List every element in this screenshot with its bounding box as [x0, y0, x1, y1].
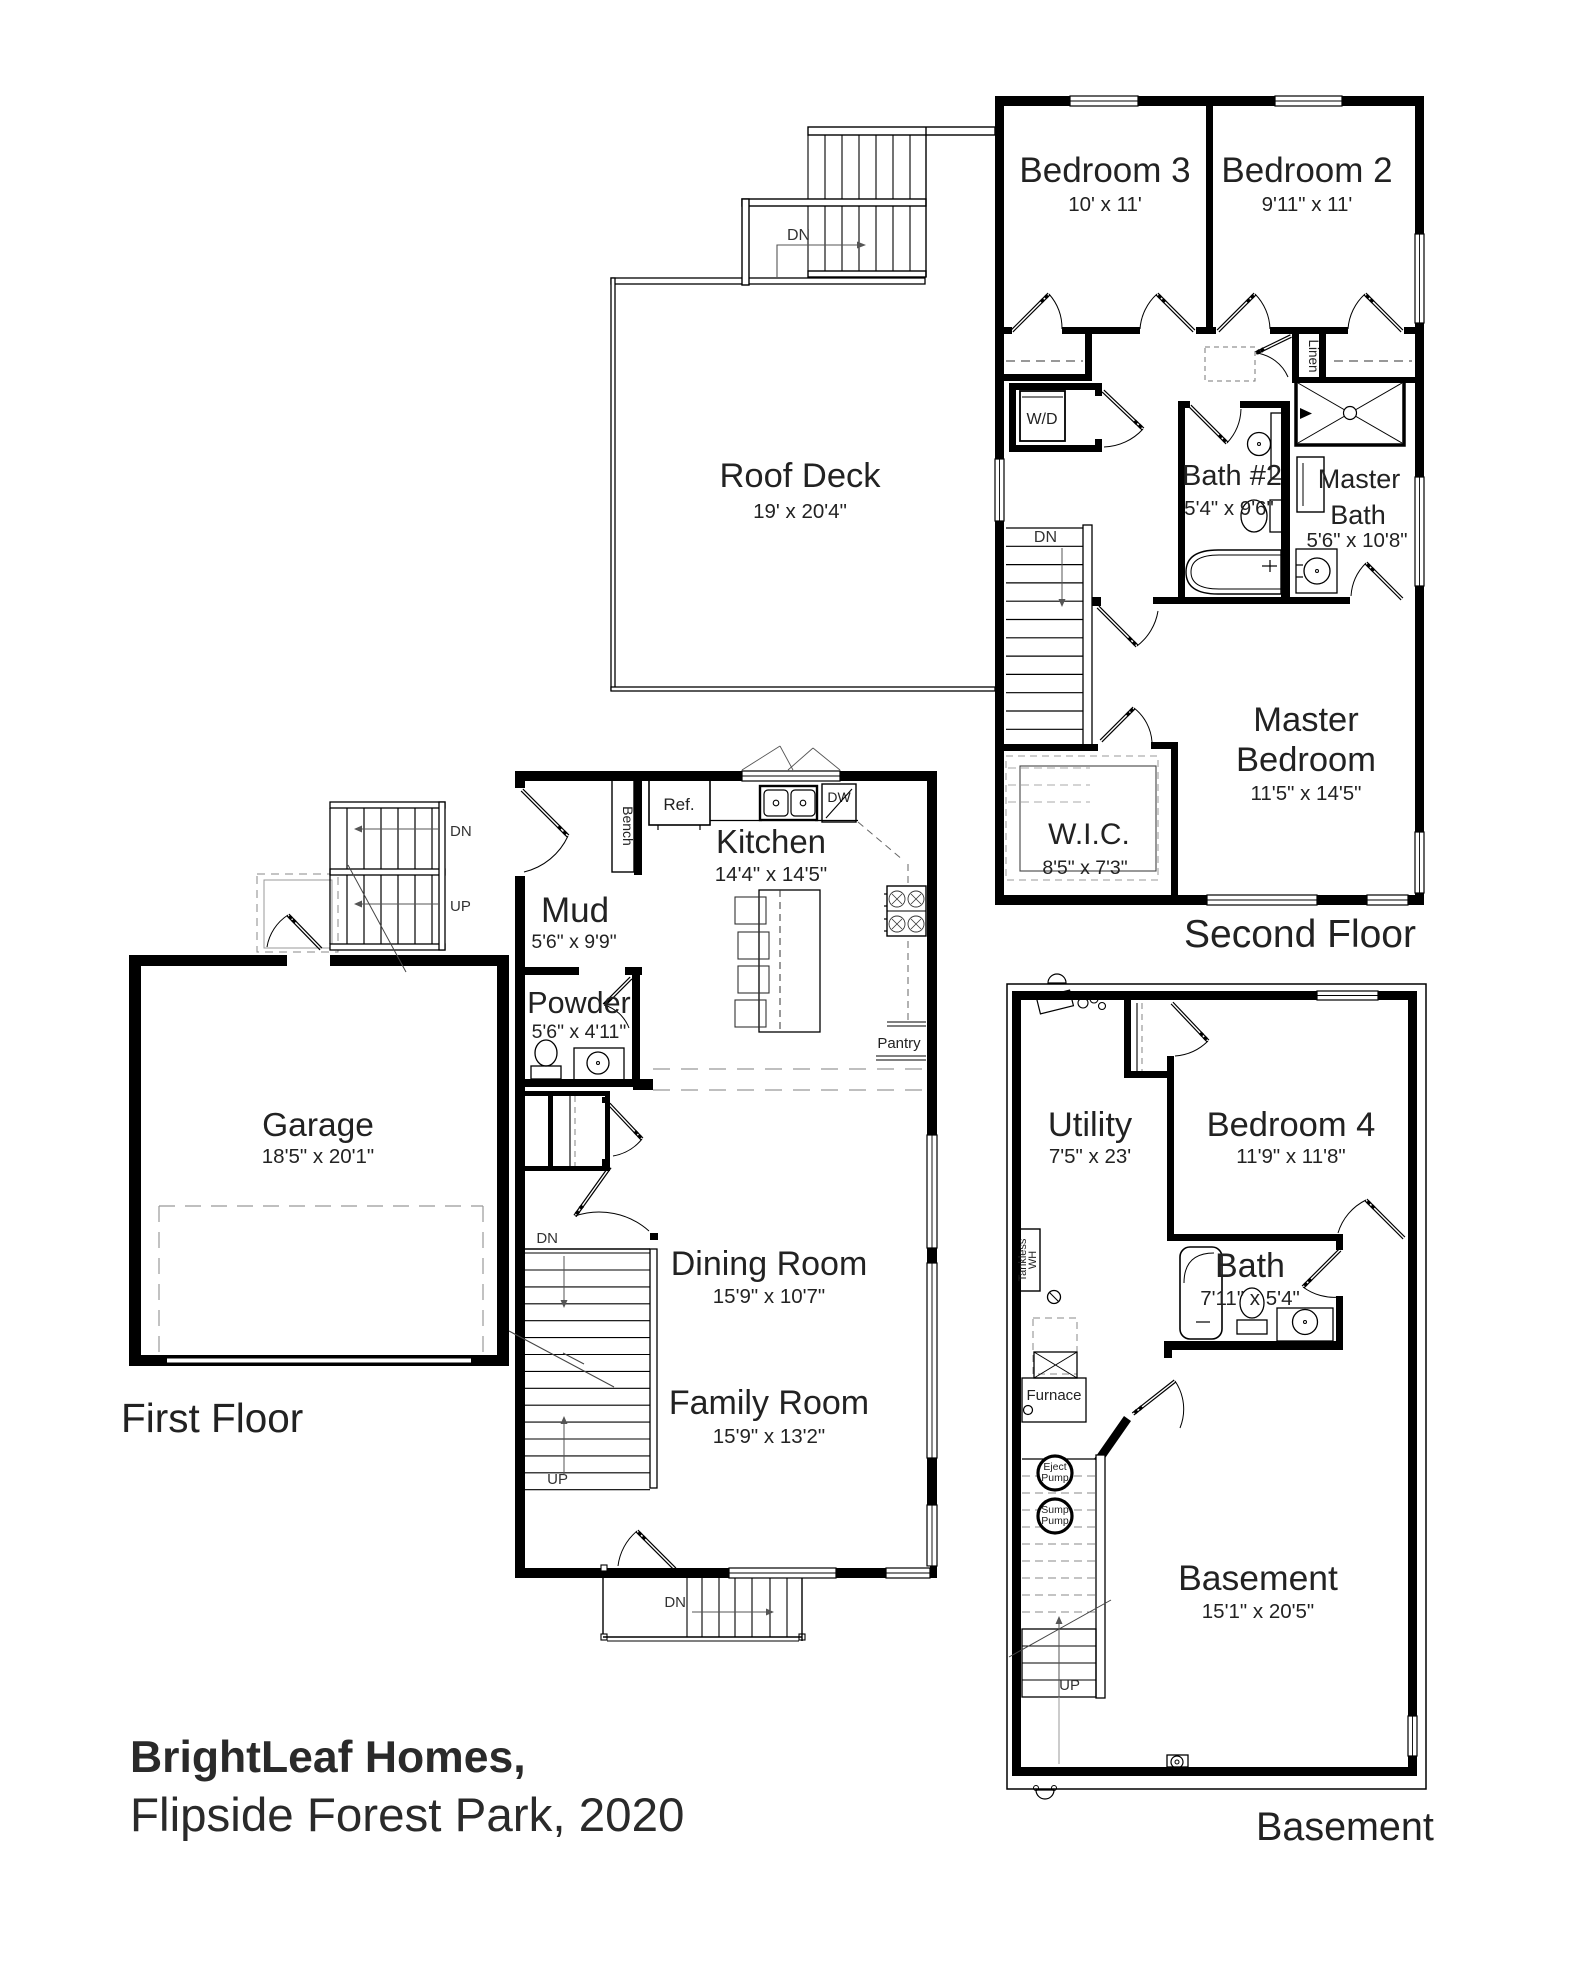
- svg-text:Master: Master: [1318, 464, 1401, 494]
- svg-text:Powder: Powder: [527, 986, 630, 1020]
- svg-text:DN: DN: [787, 227, 810, 244]
- svg-text:Basement: Basement: [1256, 1805, 1434, 1849]
- svg-text:Bedroom 2: Bedroom 2: [1221, 151, 1392, 190]
- svg-text:W/D: W/D: [1026, 411, 1057, 428]
- svg-text:WH: WH: [1027, 1251, 1039, 1269]
- svg-text:DN: DN: [536, 1230, 558, 1247]
- svg-text:5'6" x 4'11": 5'6" x 4'11": [532, 1021, 627, 1043]
- svg-text:Linen: Linen: [1306, 339, 1321, 372]
- svg-text:7'5" x 23': 7'5" x 23': [1049, 1145, 1131, 1168]
- svg-text:Garage: Garage: [262, 1107, 374, 1144]
- svg-text:15'9" x 13'2": 15'9" x 13'2": [713, 1425, 825, 1448]
- svg-text:Second Floor: Second Floor: [1184, 913, 1416, 956]
- svg-text:DN: DN: [664, 1594, 686, 1611]
- svg-text:UP: UP: [1059, 1677, 1080, 1694]
- svg-text:Bath #2: Bath #2: [1182, 460, 1282, 492]
- svg-text:Dining Room: Dining Room: [671, 1245, 868, 1283]
- svg-text:15'9" x 10'7": 15'9" x 10'7": [713, 1285, 825, 1308]
- svg-text:11'9" x 11'8": 11'9" x 11'8": [1236, 1145, 1345, 1168]
- svg-text:Basement: Basement: [1178, 1558, 1338, 1598]
- svg-text:5'6" x 9'9": 5'6" x 9'9": [531, 931, 616, 953]
- svg-text:Utility: Utility: [1048, 1106, 1133, 1144]
- svg-text:Bench: Bench: [620, 806, 636, 846]
- svg-text:Roof Deck: Roof Deck: [719, 457, 881, 495]
- svg-text:14'4" x 14'5": 14'4" x 14'5": [715, 863, 827, 886]
- svg-text:Mud: Mud: [541, 891, 609, 930]
- svg-text:Family Room: Family Room: [669, 1384, 869, 1422]
- svg-text:W.I.C.: W.I.C.: [1048, 818, 1130, 851]
- svg-text:5'4" x 9'6": 5'4" x 9'6": [1184, 497, 1274, 520]
- svg-text:DN: DN: [1034, 529, 1057, 546]
- svg-text:10' x 11': 10' x 11': [1068, 193, 1142, 216]
- svg-text:Bath: Bath: [1215, 1247, 1285, 1285]
- svg-text:First Floor: First Floor: [121, 1395, 303, 1441]
- svg-text:Kitchen: Kitchen: [716, 823, 826, 860]
- svg-text:18'5" x 20'1": 18'5" x 20'1": [262, 1145, 374, 1168]
- svg-text:UP: UP: [547, 1471, 568, 1488]
- svg-text:Furnace: Furnace: [1026, 1387, 1081, 1404]
- svg-text:11'5" x 14'5": 11'5" x 14'5": [1251, 782, 1362, 805]
- svg-text:9'11" x 11': 9'11" x 11': [1262, 193, 1353, 216]
- svg-text:Bedroom: Bedroom: [1236, 741, 1376, 779]
- svg-text:5'6" x 10'8": 5'6" x 10'8": [1306, 529, 1407, 552]
- svg-text:Flipside Forest Park, 2020: Flipside Forest Park, 2020: [130, 1789, 684, 1842]
- svg-text:Bath: Bath: [1330, 500, 1386, 530]
- svg-text:19' x 20'4": 19' x 20'4": [753, 500, 847, 523]
- svg-text:Bedroom 4: Bedroom 4: [1207, 1106, 1376, 1144]
- svg-text:15'1" x 20'5": 15'1" x 20'5": [1202, 1600, 1314, 1623]
- svg-text:Master: Master: [1253, 701, 1358, 739]
- svg-text:Pump: Pump: [1041, 1472, 1069, 1484]
- svg-text:UP: UP: [450, 898, 471, 915]
- svg-text:BrightLeaf Homes,: BrightLeaf Homes,: [130, 1733, 526, 1782]
- svg-text:7'11" x 5'4": 7'11" x 5'4": [1200, 1287, 1300, 1310]
- svg-text:Bedroom 3: Bedroom 3: [1019, 151, 1190, 190]
- svg-text:Ref.: Ref.: [663, 795, 694, 814]
- svg-text:8'5" x 7'3": 8'5" x 7'3": [1042, 857, 1127, 879]
- svg-text:Pantry: Pantry: [877, 1035, 921, 1052]
- svg-text:DN: DN: [450, 823, 472, 840]
- svg-text:Pump: Pump: [1041, 1515, 1069, 1527]
